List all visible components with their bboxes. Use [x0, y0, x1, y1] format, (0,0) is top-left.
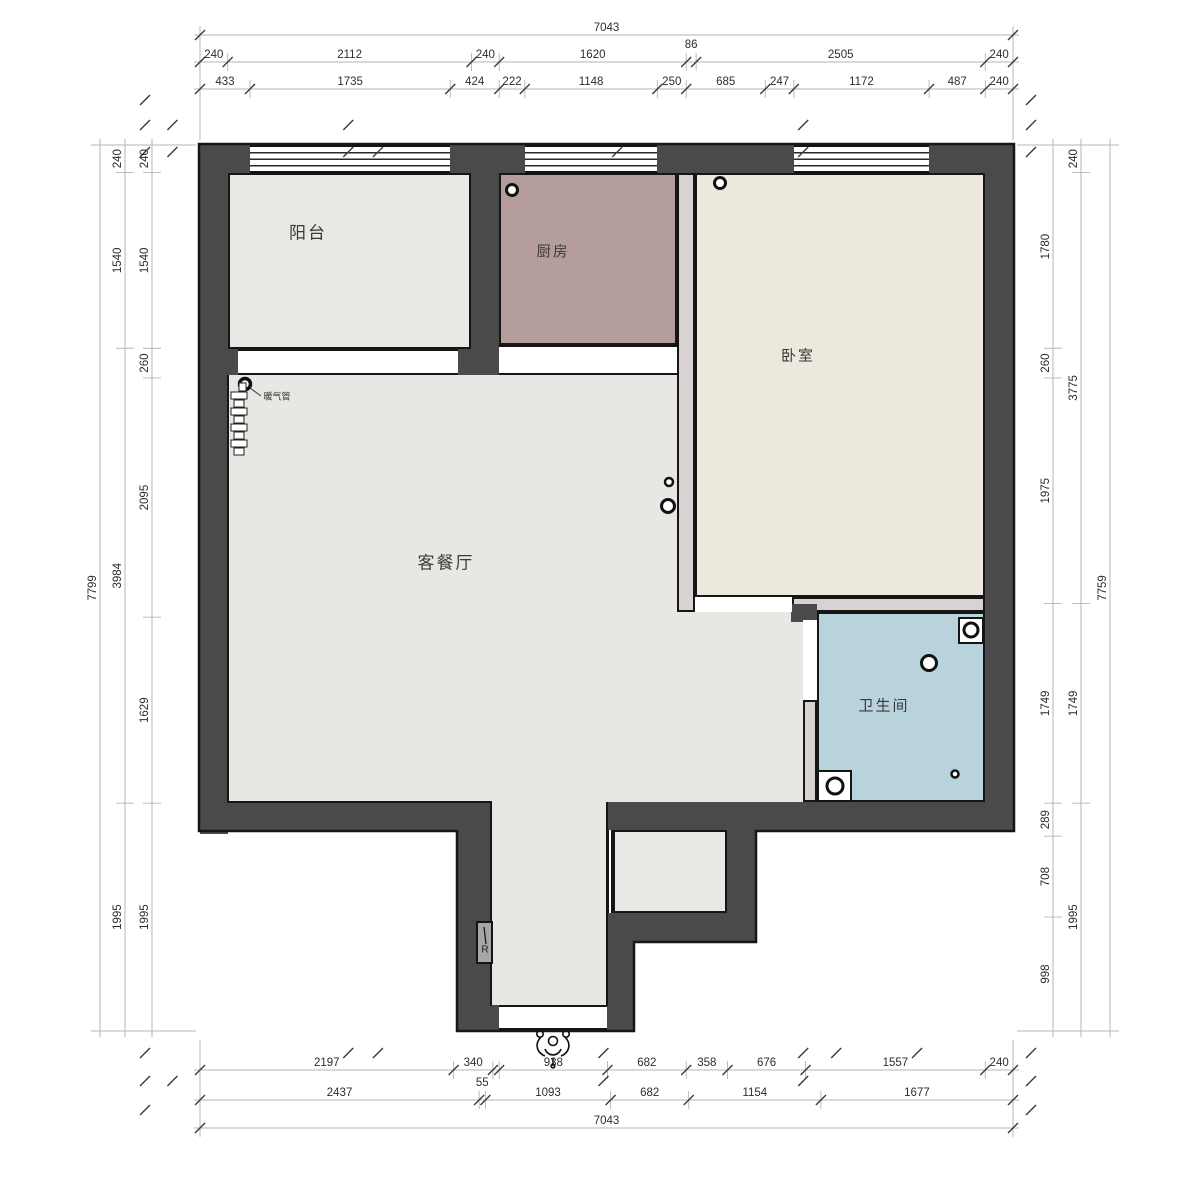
bathroom-door-opening	[803, 620, 817, 700]
svg-text:1780: 1780	[1040, 234, 1052, 260]
svg-text:2437: 2437	[327, 1087, 353, 1099]
wall-bottom-middle	[607, 802, 755, 830]
svg-text:2112: 2112	[337, 49, 362, 61]
riser-box	[476, 921, 493, 964]
balcony-label: 阳台	[289, 219, 327, 244]
kitchen-floor	[499, 173, 677, 345]
svg-text:240: 240	[990, 76, 1009, 88]
svg-text:2505: 2505	[828, 49, 854, 61]
living-floor-extension	[677, 612, 803, 802]
balcony-opening	[238, 349, 458, 375]
svg-text:2197: 2197	[314, 1057, 340, 1069]
svg-text:1540: 1540	[112, 248, 124, 274]
svg-text:1995: 1995	[112, 904, 124, 930]
wall-entry-door-pier	[490, 1005, 499, 1030]
svg-text:240: 240	[990, 1057, 1009, 1069]
bedroom-door-opening	[695, 597, 792, 612]
svg-text:7759: 7759	[1097, 575, 1109, 601]
wall-corridor-right	[607, 913, 633, 1030]
balcony-window	[250, 145, 450, 173]
svg-text:685: 685	[716, 76, 735, 88]
svg-text:240: 240	[1068, 149, 1080, 168]
bathroom-label: 卫生间	[858, 695, 909, 716]
svg-text:1677: 1677	[904, 1087, 930, 1099]
svg-text:1620: 1620	[580, 49, 606, 61]
svg-text:247: 247	[770, 76, 789, 88]
svg-text:240: 240	[204, 49, 223, 61]
svg-text:682: 682	[640, 1087, 659, 1099]
svg-text:340: 340	[464, 1057, 483, 1069]
living-dining-label: 客餐厅	[418, 549, 475, 574]
svg-text:222: 222	[502, 76, 521, 88]
svg-text:1540: 1540	[139, 248, 151, 274]
svg-text:433: 433	[215, 76, 234, 88]
bedroom-floor	[695, 173, 985, 597]
living-bottom-outline	[228, 801, 492, 803]
svg-text:1629: 1629	[139, 697, 151, 723]
svg-text:358: 358	[697, 1057, 716, 1069]
svg-text:7799: 7799	[87, 575, 99, 601]
svg-text:1735: 1735	[337, 76, 363, 88]
corridor-left-outline	[490, 802, 492, 1006]
living-dining-floor	[228, 375, 677, 802]
svg-text:2095: 2095	[139, 485, 151, 511]
svg-text:998: 998	[1040, 964, 1052, 983]
svg-text:1749: 1749	[1068, 691, 1080, 717]
kitchen-window	[525, 145, 657, 173]
entry-door-opening	[499, 1005, 607, 1030]
svg-text:1557: 1557	[883, 1057, 909, 1069]
svg-text:240: 240	[139, 149, 151, 168]
wall-right	[985, 145, 1013, 830]
svg-text:708: 708	[1040, 867, 1052, 886]
wall-nook-bottom	[633, 913, 755, 941]
wall-balcony-kitchen-divider	[471, 173, 499, 349]
svg-text:1172: 1172	[849, 76, 874, 88]
bedroom-partition-wall	[677, 173, 695, 612]
svg-text:1749: 1749	[1040, 691, 1052, 717]
svg-text:1995: 1995	[1068, 904, 1080, 930]
svg-text:260: 260	[139, 354, 151, 373]
riser-label: R	[481, 945, 488, 956]
entry-corridor-floor	[490, 802, 607, 1005]
svg-text:55: 55	[476, 1077, 489, 1089]
svg-text:86: 86	[685, 39, 698, 51]
balcony-floor	[228, 173, 471, 349]
entrance-figure-icon	[537, 1031, 569, 1068]
svg-text:240: 240	[112, 149, 124, 168]
living-left-outline	[227, 375, 229, 803]
svg-text:7043: 7043	[594, 1115, 620, 1127]
corridor-right-outline	[606, 802, 608, 1006]
bedroom-label: 卧室	[781, 345, 815, 366]
svg-text:3775: 3775	[1068, 375, 1080, 401]
wall-divider-foot	[458, 349, 499, 375]
svg-text:7043: 7043	[594, 22, 620, 34]
svg-text:487: 487	[948, 76, 967, 88]
svg-text:3984: 3984	[112, 562, 124, 588]
svg-text:1975: 1975	[1040, 478, 1052, 504]
svg-text:1154: 1154	[742, 1087, 767, 1099]
kitchen-label: 厨房	[537, 241, 570, 262]
bedroom-window	[794, 145, 929, 173]
wall-balcony-pier	[228, 349, 238, 375]
entry-nook-floor	[613, 830, 727, 913]
svg-text:682: 682	[637, 1057, 656, 1069]
bathroom-top-wall	[792, 597, 985, 612]
svg-text:240: 240	[476, 49, 495, 61]
wall-bottom-right	[755, 802, 985, 830]
bathroom-pipe-fixture	[817, 770, 852, 802]
svg-text:424: 424	[465, 76, 485, 88]
wall-bottom-left	[200, 802, 490, 830]
svg-text:260: 260	[1040, 354, 1052, 373]
wall-left	[200, 145, 228, 834]
floor-plan-canvas: 7043240211224016208625052404331735424222…	[0, 0, 1200, 1200]
bathroom-left-wall	[803, 700, 817, 802]
svg-text:250: 250	[662, 76, 681, 88]
svg-text:938: 938	[544, 1057, 563, 1069]
svg-text:676: 676	[757, 1057, 776, 1069]
heating-pipe-label: 暖气管	[263, 390, 290, 403]
svg-text:1995: 1995	[139, 904, 151, 930]
bathroom-duct-fixture	[958, 617, 984, 644]
svg-text:1148: 1148	[579, 76, 604, 88]
svg-text:1093: 1093	[535, 1087, 561, 1099]
svg-text:240: 240	[990, 49, 1009, 61]
svg-text:289: 289	[1040, 810, 1052, 829]
kitchen-opening	[499, 345, 677, 375]
